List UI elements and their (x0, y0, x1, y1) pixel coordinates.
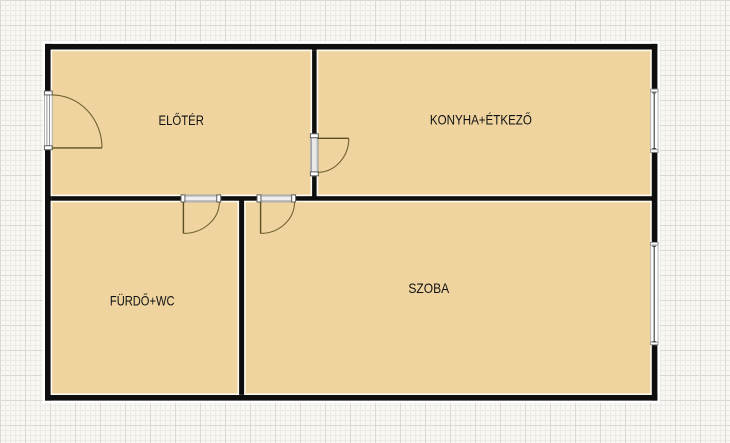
svg-text:ELŐTÉR: ELŐTÉR (159, 112, 204, 128)
svg-text:FÜRDŐ+WC: FÜRDŐ+WC (110, 292, 175, 309)
svg-text:KONYHA+ÉTKEZŐ: KONYHA+ÉTKEZŐ (430, 111, 532, 127)
svg-text:SZOBA: SZOBA (408, 280, 449, 296)
